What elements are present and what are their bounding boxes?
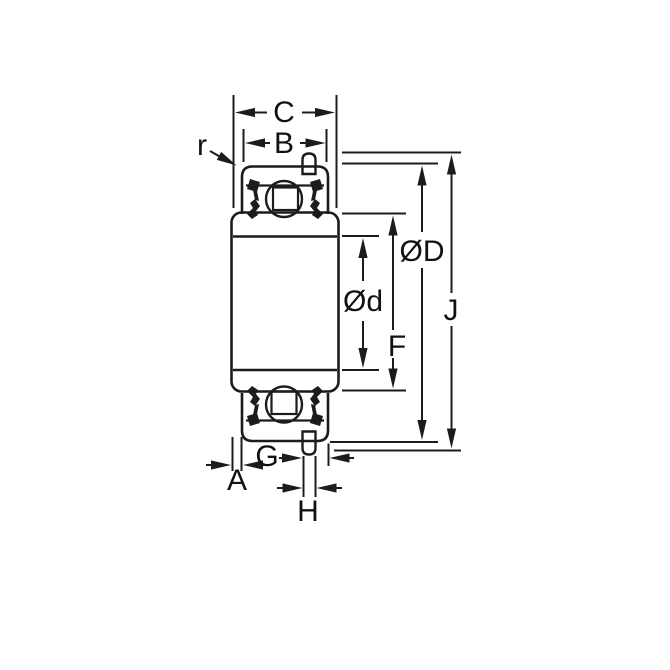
arrowhead xyxy=(417,420,426,440)
arrowhead xyxy=(358,348,367,368)
bearing-diagram: C B r ØD xyxy=(0,0,670,670)
arrowhead xyxy=(306,138,326,147)
dim-label-C: C xyxy=(273,96,295,129)
dimension-annotations: C B r ØD xyxy=(197,95,461,528)
arrowhead xyxy=(330,453,350,462)
dim-label-G: G xyxy=(255,440,278,473)
drawing-canvas: C B r ØD xyxy=(0,0,670,670)
pin-bottom xyxy=(303,432,316,455)
arrowhead xyxy=(388,216,397,236)
arrowhead xyxy=(447,155,456,175)
bearing-part xyxy=(232,154,339,455)
dim-label-B: B xyxy=(274,127,294,160)
dim-label-A: A xyxy=(227,464,247,497)
dim-label-H: H xyxy=(297,495,319,528)
arrowhead xyxy=(282,453,302,462)
arrowhead xyxy=(447,429,456,449)
dim-label-r: r xyxy=(197,129,207,162)
dim-H: H xyxy=(277,456,342,528)
inner-ring xyxy=(232,213,339,392)
arrowhead xyxy=(315,108,335,117)
cage-bottom xyxy=(272,392,297,415)
cage-top xyxy=(273,188,298,211)
dim-label-F: F xyxy=(388,330,406,363)
arrowhead xyxy=(283,483,303,492)
dim-r: r xyxy=(197,129,237,166)
arrowhead xyxy=(388,369,397,389)
dim-Od: Ød xyxy=(342,236,383,370)
arrowhead xyxy=(235,108,255,117)
pin-top xyxy=(303,154,316,175)
dim-label-J: J xyxy=(444,294,459,327)
dim-G: G xyxy=(255,440,354,473)
arrowhead xyxy=(245,138,265,147)
arrowhead xyxy=(317,483,337,492)
dim-label-OD: ØD xyxy=(400,235,445,268)
arrowhead xyxy=(358,238,367,258)
dim-label-Od: Ød xyxy=(343,285,383,318)
arrowhead xyxy=(417,166,426,186)
